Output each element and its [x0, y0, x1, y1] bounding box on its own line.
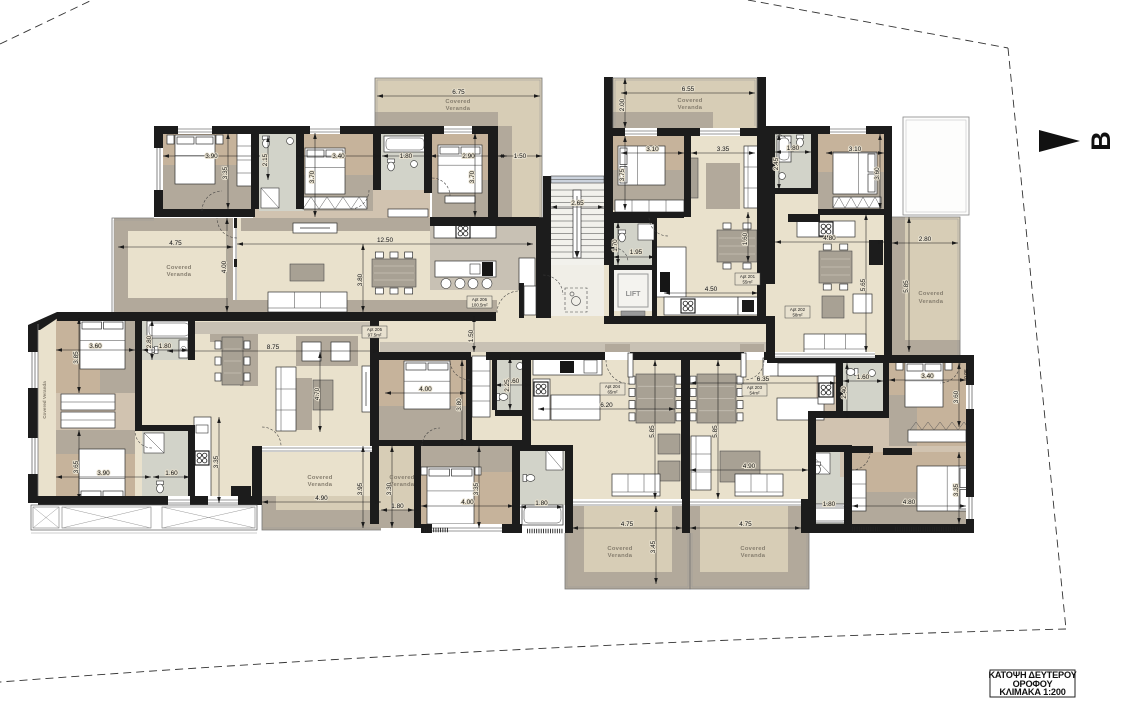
svg-text:1.80: 1.80	[823, 501, 836, 508]
svg-text:Covered: Covered	[677, 98, 702, 104]
svg-text:Apt 205: Apt 205	[367, 327, 383, 332]
svg-text:100.5m²: 100.5m²	[471, 303, 488, 308]
svg-text:Veranda: Veranda	[919, 299, 944, 305]
svg-text:2.90: 2.90	[462, 153, 475, 160]
svg-text:3.80: 3.80	[357, 273, 364, 286]
svg-text:Covered: Covered	[918, 291, 943, 297]
svg-text:1.50: 1.50	[514, 153, 527, 160]
svg-text:Apt 204: Apt 204	[605, 384, 621, 389]
svg-text:4.50: 4.50	[705, 286, 718, 293]
svg-text:5.85: 5.85	[903, 280, 910, 293]
svg-text:Covered: Covered	[307, 475, 332, 481]
svg-text:Veranda: Veranda	[741, 553, 766, 559]
svg-text:5.85: 5.85	[712, 425, 719, 438]
svg-text:55m²: 55m²	[742, 280, 753, 285]
svg-text:3.90: 3.90	[97, 470, 110, 477]
svg-text:1.70: 1.70	[612, 239, 619, 252]
svg-text:3.80: 3.80	[456, 398, 463, 411]
svg-text:4.90: 4.90	[315, 495, 328, 502]
svg-text:4.00: 4.00	[419, 386, 432, 393]
svg-text:2.25: 2.25	[504, 379, 511, 392]
svg-text:6.20: 6.20	[600, 402, 613, 409]
svg-text:3.60: 3.60	[874, 167, 881, 180]
svg-text:3.65: 3.65	[73, 460, 80, 473]
svg-text:5.65: 5.65	[860, 278, 867, 291]
svg-text:3.35: 3.35	[222, 166, 229, 179]
svg-text:1.60: 1.60	[165, 470, 178, 477]
svg-text:Covered: Covered	[740, 546, 765, 552]
svg-text:Veranda: Veranda	[608, 553, 633, 559]
svg-text:2.40: 2.40	[841, 386, 848, 399]
svg-text:1.80: 1.80	[400, 153, 413, 160]
svg-text:4.70: 4.70	[314, 387, 321, 400]
svg-text:97.5m²: 97.5m²	[368, 333, 382, 338]
svg-text:4.80: 4.80	[823, 235, 836, 242]
svg-text:3.45: 3.45	[650, 540, 657, 553]
svg-text:Covered Veranda: Covered Veranda	[42, 381, 47, 419]
svg-text:3.10: 3.10	[849, 146, 862, 153]
svg-text:Apt 206: Apt 206	[472, 297, 488, 302]
svg-text:5.85: 5.85	[649, 425, 656, 438]
svg-text:B: B	[1086, 131, 1116, 151]
svg-text:Covered: Covered	[389, 475, 414, 481]
svg-text:4.75: 4.75	[621, 521, 634, 528]
svg-text:3.85: 3.85	[73, 351, 80, 364]
svg-text:2.65: 2.65	[571, 200, 584, 207]
svg-text:Covered: Covered	[166, 265, 191, 271]
svg-text:3.90: 3.90	[205, 153, 218, 160]
svg-text:LIFT: LIFT	[626, 291, 641, 298]
svg-text:12.50: 12.50	[377, 237, 393, 244]
svg-text:3.40: 3.40	[921, 373, 934, 380]
svg-text:Covered: Covered	[445, 99, 470, 105]
svg-text:3.70: 3.70	[309, 170, 316, 183]
svg-text:1.60: 1.60	[857, 374, 870, 381]
svg-text:Covered: Covered	[607, 546, 632, 552]
svg-text:4.00: 4.00	[461, 499, 474, 506]
svg-text:2.15: 2.15	[262, 153, 269, 166]
svg-text:1.80: 1.80	[535, 500, 548, 507]
svg-text:Veranda: Veranda	[678, 105, 703, 111]
svg-text:3.40: 3.40	[332, 153, 345, 160]
svg-text:3.35: 3.35	[953, 483, 960, 496]
svg-text:Veranda: Veranda	[446, 106, 471, 112]
svg-text:6.35: 6.35	[757, 376, 770, 383]
svg-text:1.95: 1.95	[630, 249, 643, 256]
svg-text:Apt 202: Apt 202	[790, 307, 806, 312]
svg-text:3.75: 3.75	[619, 168, 626, 181]
svg-text:6.75: 6.75	[452, 89, 465, 96]
svg-text:Veranda: Veranda	[308, 482, 333, 488]
svg-text:1.60: 1.60	[742, 232, 749, 245]
svg-text:3.10: 3.10	[646, 146, 659, 153]
svg-text:3.35: 3.35	[213, 455, 220, 468]
svg-text:1.80: 1.80	[787, 145, 800, 152]
svg-text:3.35: 3.35	[473, 482, 480, 495]
svg-text:2.00: 2.00	[619, 98, 626, 111]
svg-text:4.75: 4.75	[739, 521, 752, 528]
svg-text:4.90: 4.90	[743, 463, 756, 470]
svg-text:2.80: 2.80	[146, 335, 153, 348]
svg-text:3.60: 3.60	[953, 390, 960, 403]
svg-text:2.80: 2.80	[919, 236, 932, 243]
svg-text:54m²: 54m²	[749, 391, 760, 396]
svg-text:4.00: 4.00	[221, 260, 228, 273]
svg-text:2.45: 2.45	[773, 157, 780, 170]
svg-text:8.75: 8.75	[267, 344, 280, 351]
svg-text:3.70: 3.70	[469, 170, 476, 183]
svg-text:6.55: 6.55	[682, 86, 695, 93]
svg-text:58m²: 58m²	[792, 313, 803, 318]
svg-text:65m²: 65m²	[607, 390, 618, 395]
svg-text:3.95: 3.95	[357, 482, 364, 495]
svg-text:3.60: 3.60	[89, 343, 102, 350]
svg-text:4.75: 4.75	[169, 240, 182, 247]
svg-text:1.80: 1.80	[391, 503, 404, 510]
svg-text:3.35: 3.35	[717, 146, 730, 153]
svg-text:0.95: 0.95	[964, 369, 970, 379]
svg-text:4.80: 4.80	[903, 499, 916, 506]
svg-text:Apt 201: Apt 201	[740, 274, 756, 279]
svg-text:1.50: 1.50	[468, 329, 475, 342]
svg-text:Apt 203: Apt 203	[747, 385, 763, 390]
svg-text:Veranda: Veranda	[390, 482, 415, 488]
svg-text:ΚΛΙΜΑΚΑ 1:200: ΚΛΙΜΑΚΑ 1:200	[999, 687, 1065, 697]
svg-text:Veranda: Veranda	[167, 272, 192, 278]
svg-text:1.80: 1.80	[159, 343, 172, 350]
